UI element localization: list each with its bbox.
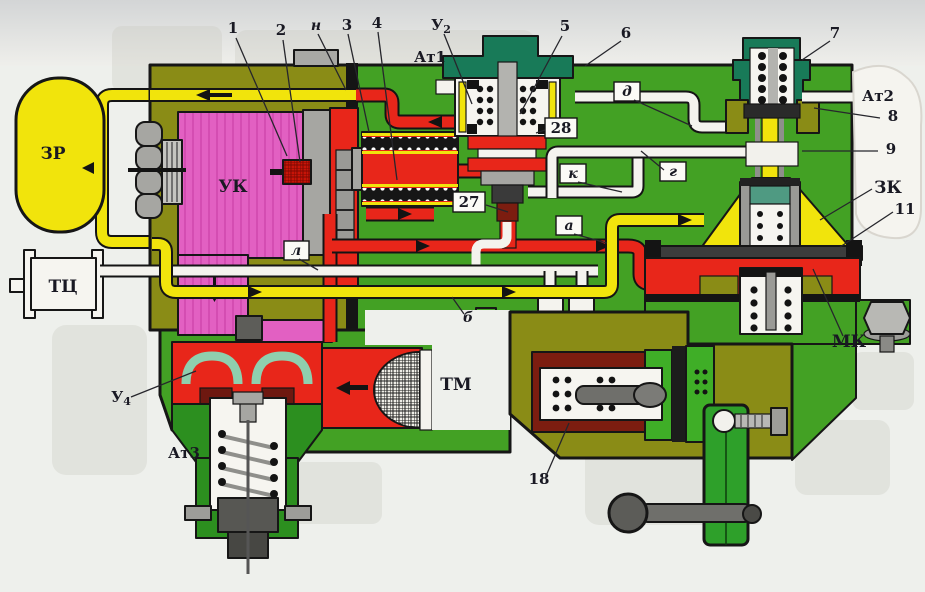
label-at1: Ат1 bbox=[414, 48, 446, 66]
release-handle-knob bbox=[609, 494, 647, 532]
brake-cylinder: ТЦ bbox=[10, 250, 103, 318]
callout-5: 5 bbox=[560, 17, 570, 35]
callout-2: 2 bbox=[276, 21, 286, 39]
callout-18: 18 bbox=[529, 470, 550, 488]
label-at2: Ат2 bbox=[862, 87, 894, 105]
channel-label-b: б bbox=[463, 310, 473, 326]
valve7-collar bbox=[746, 142, 798, 166]
channel-label-k: к bbox=[568, 166, 578, 182]
channel-label-l: л bbox=[291, 243, 301, 259]
channel-label-d: д bbox=[622, 84, 632, 100]
callout-1: 1 bbox=[228, 19, 238, 37]
callout-9: 9 bbox=[886, 140, 896, 158]
channel-label-g: г bbox=[669, 164, 677, 180]
uk-stem-bolt bbox=[236, 316, 262, 340]
label-zr: ЗР bbox=[40, 144, 65, 164]
release-handle-rod bbox=[640, 504, 752, 522]
callout-3: 3 bbox=[342, 16, 352, 34]
valve-seat bbox=[283, 160, 311, 184]
callout-28: 28 bbox=[551, 119, 572, 137]
air-distributor-cutaway-diagram: ЗР ТЦ ТМ УК bbox=[0, 0, 925, 592]
callout-7: 7 bbox=[830, 24, 840, 42]
label-tm: ТМ bbox=[440, 375, 472, 395]
reserve-reservoir-tank: ЗР bbox=[16, 78, 104, 232]
callout-4: 4 bbox=[372, 14, 382, 32]
callout-6: 6 bbox=[621, 24, 631, 42]
callout-27: 27 bbox=[459, 193, 480, 211]
label-at3: Ат3 bbox=[168, 444, 200, 462]
main-piston bbox=[352, 132, 458, 206]
label-mk: МК bbox=[832, 332, 867, 352]
label-zk: ЗК bbox=[874, 178, 902, 198]
channel-label-n: н bbox=[311, 18, 321, 34]
channel-label-a: а bbox=[564, 218, 573, 234]
label-tc: ТЦ bbox=[48, 277, 77, 297]
label-uk: УК bbox=[218, 177, 248, 197]
callout-11: 11 bbox=[895, 200, 916, 218]
callout-8: 8 bbox=[888, 107, 898, 125]
